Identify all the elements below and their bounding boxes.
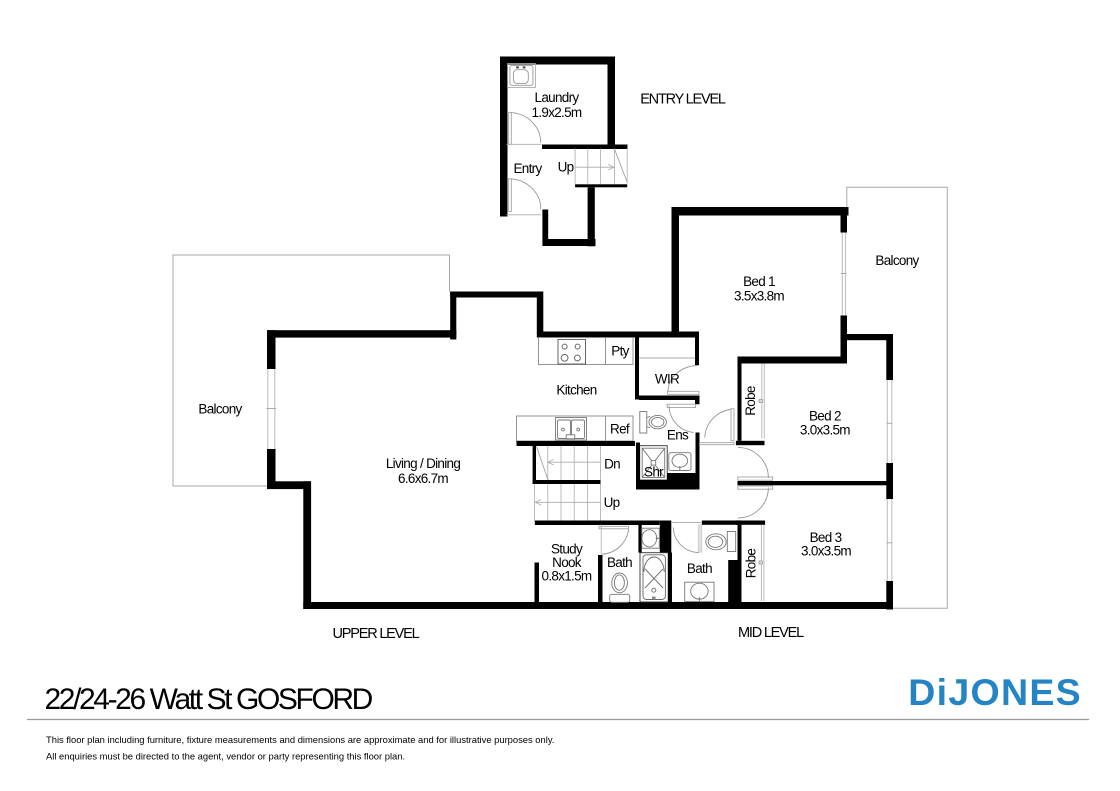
svg-text:3.5x3.8m: 3.5x3.8m xyxy=(734,288,784,303)
svg-text:Kitchen: Kitchen xyxy=(556,382,596,397)
svg-text:1.9x2.5m: 1.9x2.5m xyxy=(532,105,582,120)
svg-text:DiJONES: DiJONES xyxy=(908,671,1082,713)
svg-text:Up: Up xyxy=(604,495,620,510)
svg-text:Ens: Ens xyxy=(667,427,689,442)
svg-text:Robe: Robe xyxy=(743,386,758,416)
svg-text:ENTRY LEVEL: ENTRY LEVEL xyxy=(640,92,726,108)
svg-text:22/24-26 Watt St GOSFORD: 22/24-26 Watt St GOSFORD xyxy=(45,683,373,716)
svg-text:3.0x3.5m: 3.0x3.5m xyxy=(801,543,851,558)
svg-text:0.8x1.5m: 0.8x1.5m xyxy=(542,568,592,583)
svg-text:Laundry: Laundry xyxy=(535,90,580,105)
svg-text:Pty: Pty xyxy=(611,343,629,358)
svg-text:Bed 2: Bed 2 xyxy=(809,408,841,423)
svg-text:MID LEVEL: MID LEVEL xyxy=(738,625,804,641)
svg-text:Balcony: Balcony xyxy=(875,253,919,268)
svg-text:3.0x3.5m: 3.0x3.5m xyxy=(800,422,850,437)
svg-text:This floor plan including furn: This floor plan including furniture, fix… xyxy=(46,734,554,745)
svg-text:All enquiries must be directed: All enquiries must be directed to the ag… xyxy=(46,751,405,762)
svg-text:Up: Up xyxy=(558,159,574,174)
svg-text:Entry: Entry xyxy=(513,161,542,176)
svg-text:Shr: Shr xyxy=(644,464,664,479)
svg-text:UPPER LEVEL: UPPER LEVEL xyxy=(333,626,420,642)
svg-text:Bath: Bath xyxy=(687,561,712,576)
svg-text:Dn: Dn xyxy=(604,456,620,471)
svg-text:Bed 1: Bed 1 xyxy=(743,274,775,289)
svg-text:Balcony: Balcony xyxy=(198,401,242,416)
svg-text:Ref: Ref xyxy=(610,421,630,436)
svg-text:Robe: Robe xyxy=(743,549,758,579)
svg-text:Bath: Bath xyxy=(607,555,632,570)
svg-text:6.6x6.7m: 6.6x6.7m xyxy=(398,471,448,486)
svg-text:Living / Dining: Living / Dining xyxy=(386,456,460,471)
svg-text:WIR: WIR xyxy=(655,371,680,386)
